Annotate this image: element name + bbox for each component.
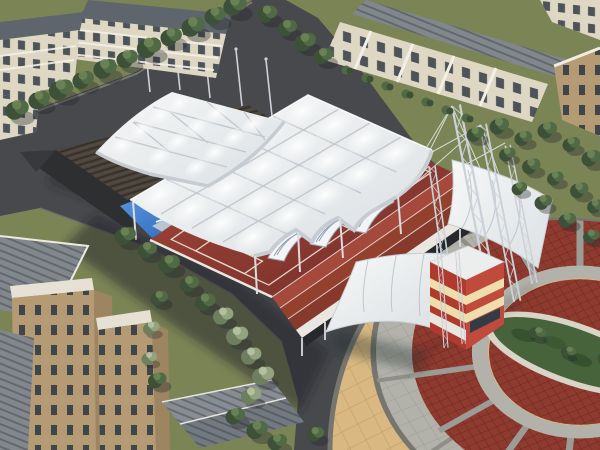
aerial-render-canvas xyxy=(0,0,600,450)
render-viewport xyxy=(0,0,600,450)
